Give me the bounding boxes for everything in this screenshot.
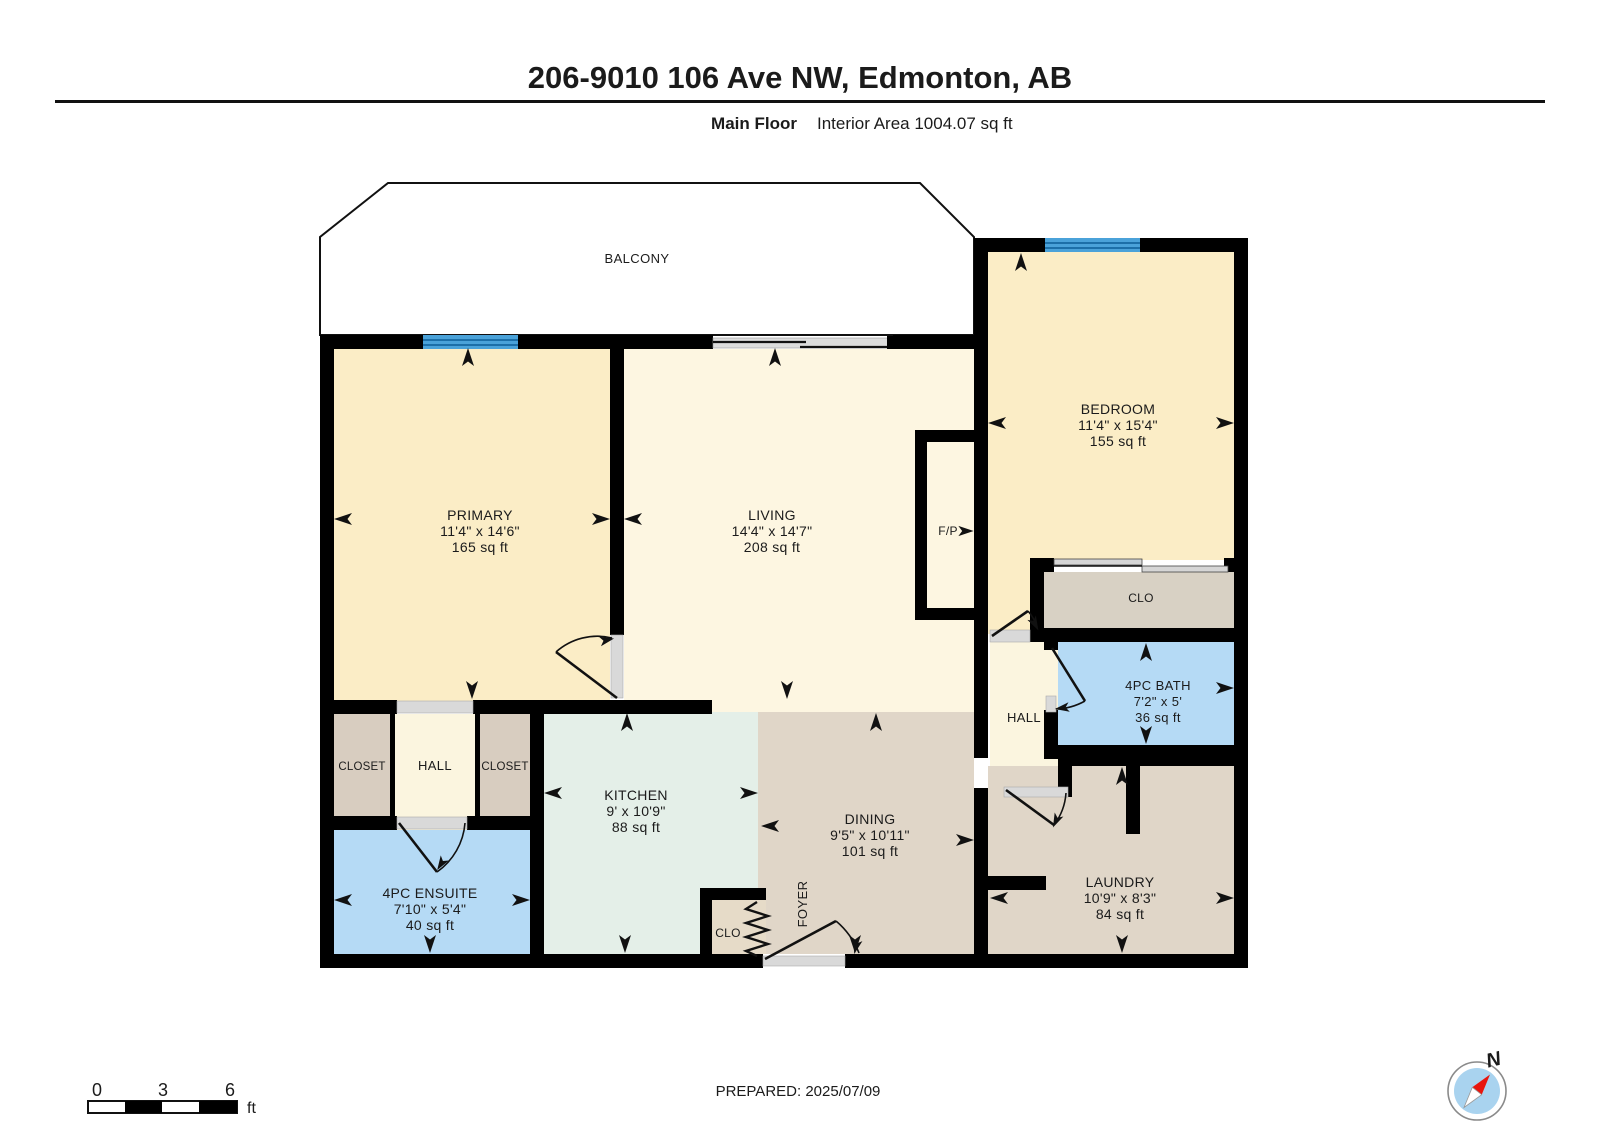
bath-label: 4PC BATH: [1125, 678, 1191, 693]
window-bedroom: [1045, 238, 1140, 252]
laundry-dims: 10'9" x 8'3": [1084, 890, 1157, 906]
floorplan-canvas: 206-9010 106 Ave NW, Edmonton, AB Main F…: [0, 0, 1600, 1143]
living-area: 208 sq ft: [744, 539, 800, 555]
patio-sliding-door: [713, 336, 894, 349]
floorplan-page: 206-9010 106 Ave NW, Edmonton, AB Main F…: [0, 0, 1600, 1143]
ensuite-label: 4PC ENSUITE: [382, 885, 477, 901]
closet-right-label: CLOSET: [481, 761, 528, 773]
bedroom-door-nook: [988, 558, 1030, 634]
floor-label: Main Floor: [711, 114, 797, 133]
primary-door-slab: [611, 635, 623, 698]
scale-bar: 0 3 6 ft: [88, 1080, 256, 1117]
laundry-area: 84 sq ft: [1096, 906, 1144, 922]
hall-left-top-sill: [397, 701, 473, 713]
header-divider: [55, 100, 1545, 103]
hall-right-label: HALL: [1007, 710, 1041, 725]
bedroom-area: 155 sq ft: [1090, 433, 1146, 449]
closet-sliding-door: [1054, 559, 1228, 572]
bath-door-slab: [1046, 696, 1056, 712]
fireplace-label: F/P: [938, 524, 958, 538]
foyer-label: FOYER: [795, 881, 810, 928]
hall-left-bottom-sill: [397, 817, 467, 829]
primary-label: PRIMARY: [447, 507, 513, 523]
primary-area: 165 sq ft: [452, 539, 508, 555]
foyer-closet-label: CLO: [715, 926, 741, 940]
kitchen-label: KITCHEN: [604, 787, 668, 803]
kitchen-area: 88 sq ft: [612, 819, 660, 835]
header: 206-9010 106 Ave NW, Edmonton, AB Main F…: [55, 60, 1545, 133]
kitchen-dims: 9' x 10'9": [606, 803, 665, 819]
living-dims: 14'4" x 14'7": [732, 523, 813, 539]
living-label: LIVING: [748, 507, 796, 523]
bath-dims: 7'2" x 5': [1134, 694, 1183, 709]
dining-label: DINING: [845, 811, 896, 827]
primary-dims: 11'4" x 14'6": [440, 523, 520, 539]
entry-door-sill: [763, 956, 845, 966]
ensuite-area: 40 sq ft: [406, 917, 454, 933]
dining-area: 101 sq ft: [842, 843, 898, 859]
compass: N: [1448, 1048, 1506, 1120]
scale-bar-segment: [199, 1101, 237, 1113]
balcony-label: BALCONY: [605, 251, 670, 266]
ensuite-dims: 7'10" x 5'4": [394, 901, 467, 917]
bedroom-label: BEDROOM: [1081, 401, 1155, 417]
scale-tick-3: 3: [158, 1080, 168, 1100]
room-fills: [320, 183, 1234, 954]
bedroom-dims: 11'4" x 15'4": [1078, 417, 1158, 433]
window-primary: [423, 335, 518, 349]
dining-dims: 9'5" x 10'11": [830, 827, 910, 843]
hall-left-label: HALL: [418, 758, 452, 773]
interior-area-label: Interior Area 1004.07 sq ft: [817, 114, 1013, 133]
scale-unit-label: ft: [247, 1100, 256, 1117]
scale-bar-segment: [125, 1101, 162, 1113]
closet-left-label: CLOSET: [338, 761, 385, 773]
prepared-date-label: PREPARED: 2025/07/09: [716, 1083, 881, 1100]
scale-tick-6: 6: [225, 1080, 235, 1100]
scale-tick-0: 0: [92, 1080, 102, 1100]
page-title: 206-9010 106 Ave NW, Edmonton, AB: [528, 60, 1072, 95]
laundry-label: LAUNDRY: [1086, 874, 1155, 890]
bedroom-closet-label: CLO: [1128, 591, 1154, 605]
bath-area: 36 sq ft: [1135, 710, 1181, 725]
